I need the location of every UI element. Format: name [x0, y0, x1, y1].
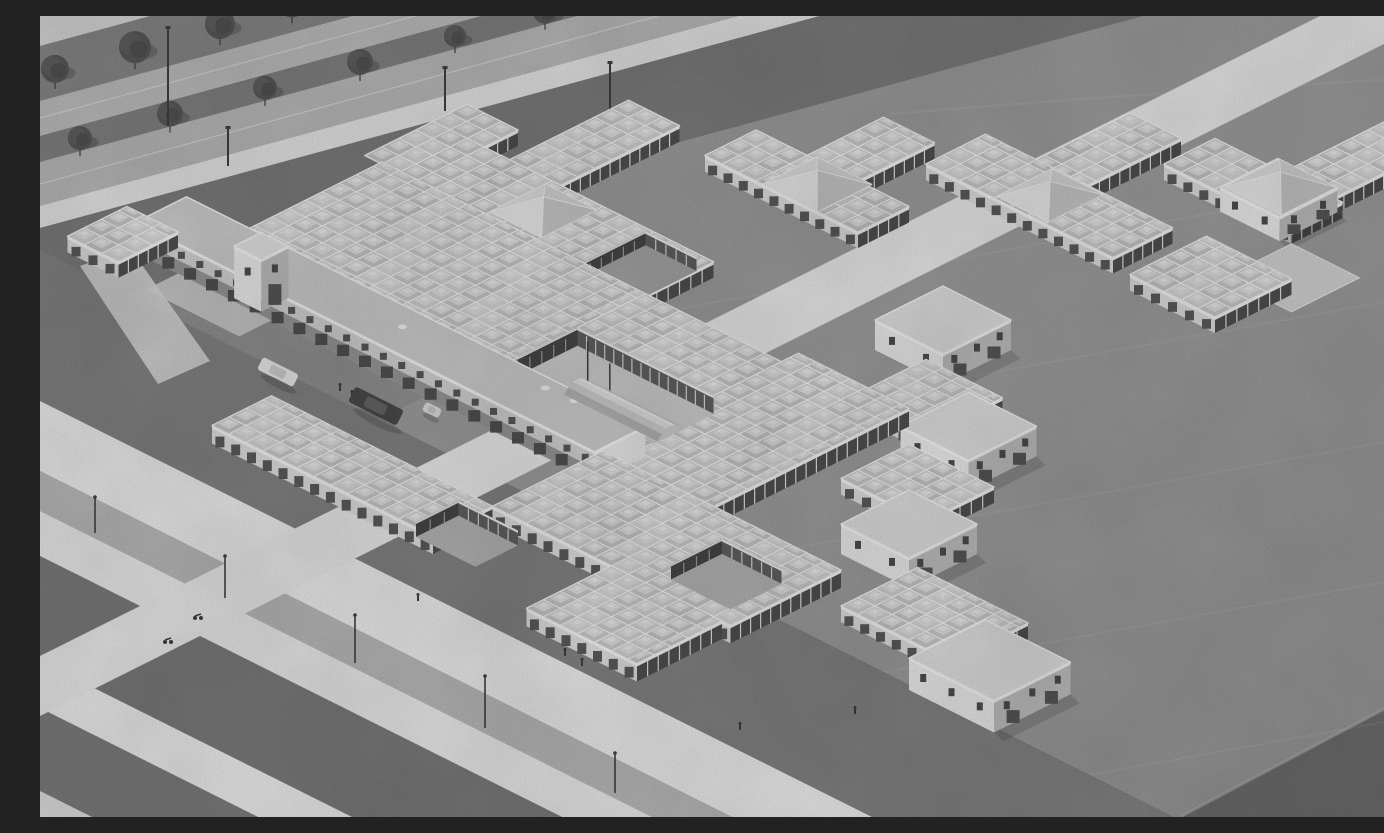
aerial-photo-canvas [40, 16, 1384, 817]
aerial-photograph [40, 16, 1384, 817]
photo-grain-light-overlay [40, 16, 1384, 817]
